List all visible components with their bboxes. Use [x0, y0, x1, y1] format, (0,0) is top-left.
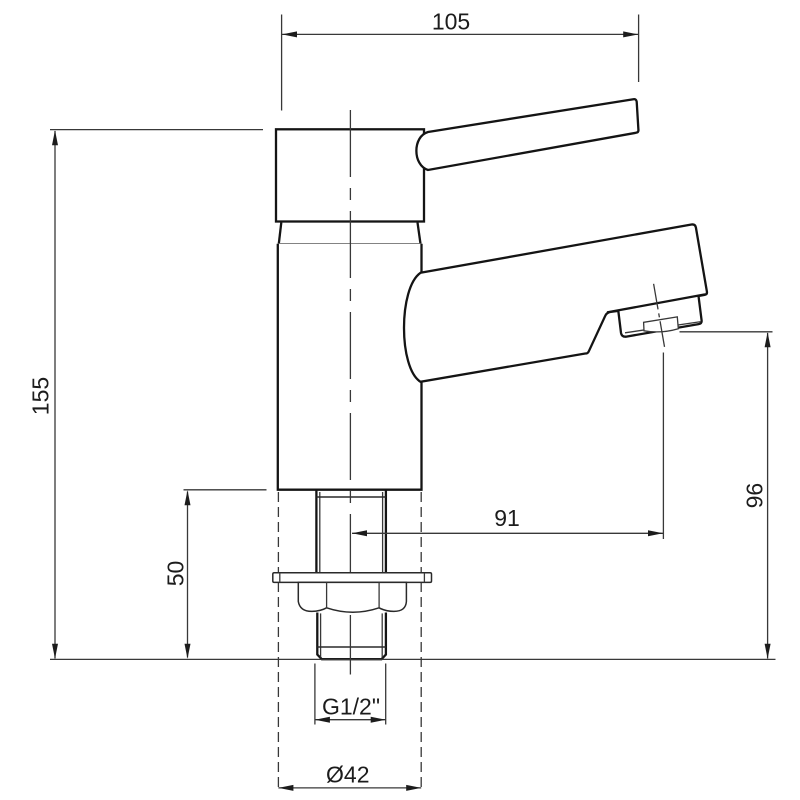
svg-text:96: 96	[742, 483, 768, 509]
svg-text:G1/2": G1/2"	[322, 694, 380, 720]
svg-text:105: 105	[432, 9, 470, 35]
svg-text:Ø42: Ø42	[326, 761, 369, 787]
svg-text:155: 155	[28, 377, 54, 415]
svg-text:91: 91	[494, 505, 520, 531]
svg-text:50: 50	[163, 561, 189, 587]
